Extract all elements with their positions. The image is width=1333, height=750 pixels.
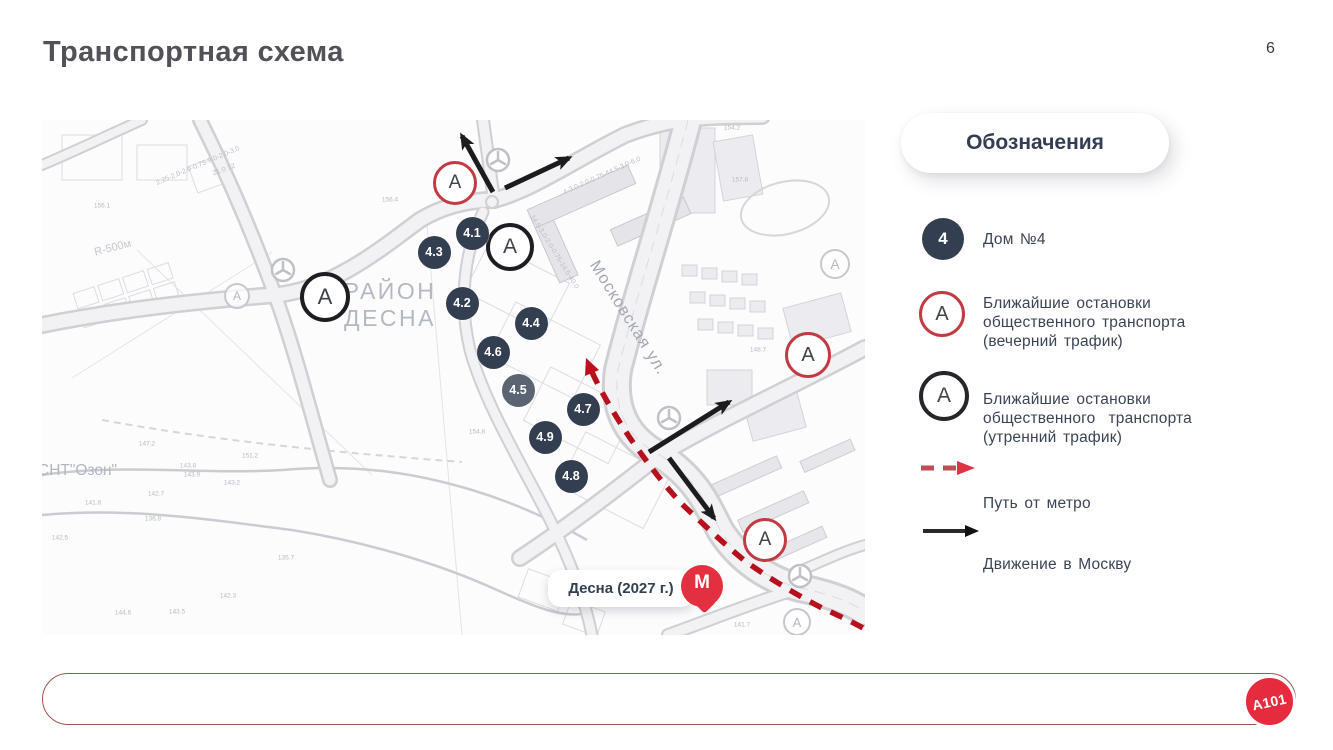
a101-logo-text: A101	[1251, 690, 1288, 713]
roundabout-icon	[270, 257, 296, 283]
elevation-label: 142.5	[52, 535, 68, 542]
elevation-label: 151.2	[242, 453, 258, 460]
elevation-label: 142.3	[220, 593, 236, 600]
road-spec-label: 21.0 12	[212, 163, 236, 178]
building-marker-4.3: 4.3	[418, 236, 451, 269]
elevation-label: 141.7	[734, 622, 750, 629]
house-legend-label: Дом №4	[983, 230, 1046, 249]
elevation-label: 143.8	[180, 463, 196, 470]
elevation-label: 156.1	[94, 203, 110, 210]
elevation-label: 144.6	[115, 610, 131, 617]
moscow-legend-label: Движение в Москву	[983, 555, 1131, 574]
bus-stop-morning-marker: А	[300, 272, 350, 322]
elevation-label: 154.8	[469, 429, 485, 436]
elevation-label: 154.2	[724, 125, 740, 132]
elevation-label: 143.2	[224, 480, 240, 487]
elevation-label: 156.4	[382, 197, 398, 204]
legend-header: Обозначения	[901, 113, 1169, 173]
building-marker-4.1: 4.1	[456, 217, 489, 250]
moscow-arrow-icon	[921, 524, 981, 538]
elevation-label: 141.8	[85, 500, 101, 507]
page-number: 6	[1266, 40, 1275, 58]
bus-stop-evening-marker: А	[785, 332, 831, 378]
page-title: Транспортная схема	[43, 36, 344, 69]
metro-pin-icon: М	[681, 565, 723, 607]
elevation-label: 142.7	[148, 491, 164, 498]
elevation-label: 147.2	[139, 441, 155, 448]
building-marker-4.4: 4.4	[515, 307, 548, 340]
road-spec-label: 14.5-3.0-2.0-0.75-14.5-40.0	[528, 214, 579, 290]
elevation-label: 157.8	[732, 177, 748, 184]
a101-logo: A101	[1243, 675, 1296, 728]
bus-stop-faint-marker: А	[783, 608, 811, 635]
morning-stop-marker-legend: А	[919, 371, 969, 421]
house-marker-legend: 4	[922, 218, 964, 260]
roundabout-icon	[485, 147, 511, 173]
building-marker-4.5: 4.5	[502, 374, 535, 407]
building-marker-4.2: 4.2	[446, 287, 479, 320]
legend-panel: Обозначения 4 Дом №4 А Ближайшие останов…	[901, 113, 1221, 593]
evening-stop-legend-label: Ближайшие остановки общественного трансп…	[983, 294, 1186, 351]
building-marker-4.7: 4.7	[567, 393, 600, 426]
metro-path-arrow-icon	[919, 459, 977, 477]
morning-stop-legend-label: Ближайшие остановки общественного трансп…	[983, 390, 1192, 447]
evening-stop-marker-legend: А	[919, 291, 965, 337]
bus-stop-faint-marker: А	[820, 249, 850, 279]
elevation-label: 136.8	[145, 516, 161, 523]
bus-stop-morning-marker: А	[486, 223, 534, 271]
bus-stop-evening-marker: А	[433, 161, 477, 205]
metro-station-label: Десна (2027 г.)	[548, 570, 694, 607]
metro-path-legend-label: Путь от метро	[983, 494, 1091, 513]
bus-stop-faint-marker: А	[224, 283, 250, 309]
bus-stop-evening-marker: А	[743, 518, 787, 562]
building-marker-4.9: 4.9	[529, 421, 562, 454]
elevation-label: 135.7	[278, 555, 294, 562]
slide: Транспортная схема 6	[0, 0, 1333, 750]
elevation-label: 143.9	[184, 472, 200, 479]
roundabout-icon	[787, 563, 813, 589]
map-overlay: 147.2151.2143.9143.2142.7141.8136.8142.5…	[42, 120, 865, 635]
building-marker-4.8: 4.8	[555, 460, 588, 493]
map: РАЙОН ДЕСНА Московская ул. СНТ"Озон" R-5…	[42, 120, 865, 635]
elevation-label: 148.7	[750, 347, 766, 354]
road-spec-label: 4-3.0-2.0-0.75-44.5-3.0-6.0	[562, 156, 642, 197]
footer-bar	[42, 673, 1296, 725]
elevation-label: 143.5	[169, 609, 185, 616]
building-marker-4.6: 4.6	[477, 336, 510, 369]
metro-letter: М	[681, 572, 723, 594]
roundabout-icon	[656, 405, 682, 431]
